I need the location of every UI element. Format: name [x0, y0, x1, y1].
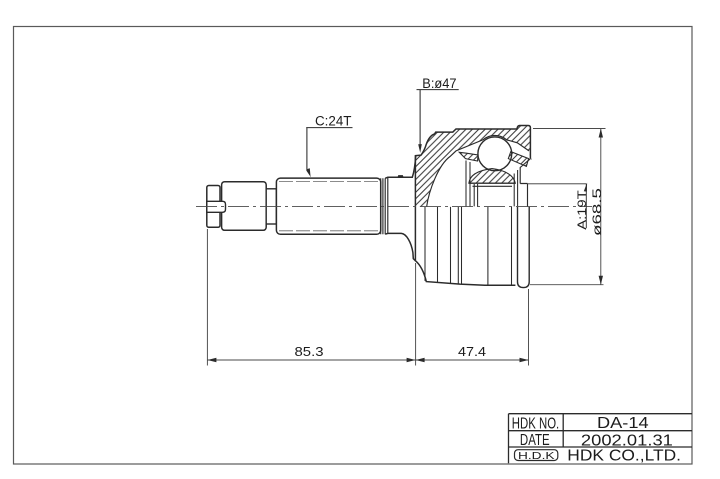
- svg-text:HDK NO.: HDK NO.: [512, 415, 559, 432]
- svg-text:47.4: 47.4: [458, 344, 486, 359]
- svg-text:ø68.5: ø68.5: [590, 187, 604, 236]
- svg-text:HDK CO.,LTD.: HDK CO.,LTD.: [567, 447, 681, 464]
- svg-text:85.3: 85.3: [295, 344, 324, 359]
- svg-text:DATE: DATE: [520, 432, 550, 449]
- svg-text:H.D.K: H.D.K: [518, 451, 555, 462]
- svg-text:DA-14: DA-14: [597, 415, 649, 432]
- svg-text:C:24T: C:24T: [315, 114, 352, 129]
- svg-text:B:ø47: B:ø47: [422, 76, 456, 91]
